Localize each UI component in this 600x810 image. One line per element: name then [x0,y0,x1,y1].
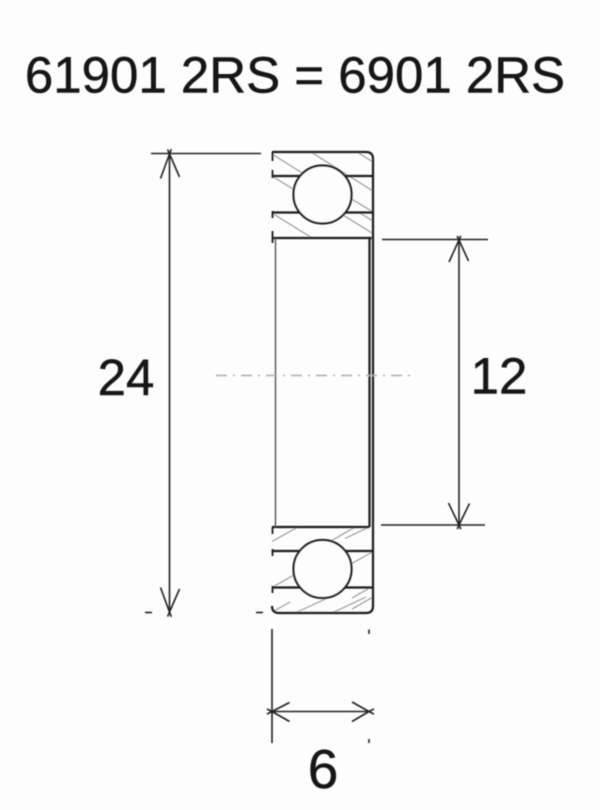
svg-text:61901 2RS = 6901 2RS: 61901 2RS = 6901 2RS [25,47,565,104]
svg-text:12: 12 [471,348,528,405]
svg-text:6: 6 [308,738,339,800]
svg-text:24: 24 [98,349,155,406]
